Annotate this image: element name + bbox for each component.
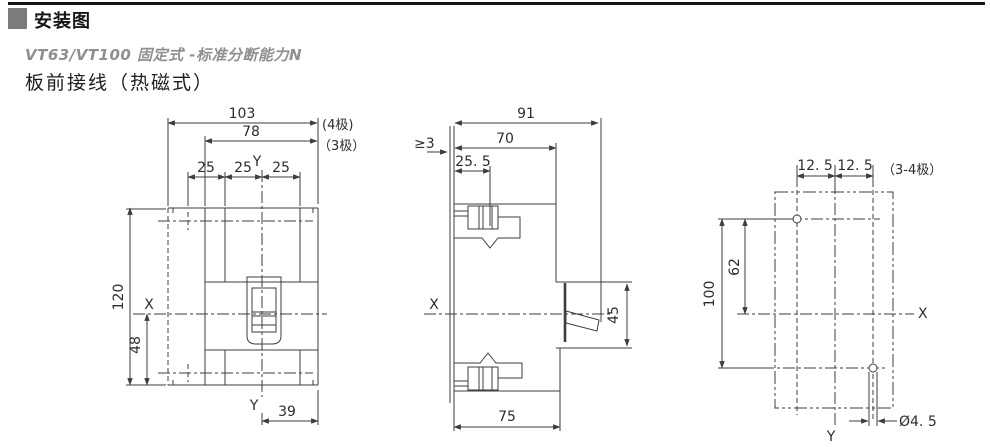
mounting-plan-view: 12. 5 12. 5 （3-4极） 62 100 X Ø4. 5 Y [702, 158, 942, 445]
label-3pole: （3极） [318, 139, 365, 154]
dim-text-120: 120 [111, 284, 127, 311]
terminal-screw-bottom [468, 367, 498, 390]
plan-axis-y: Y [826, 429, 836, 445]
dim-text-45: 45 [606, 306, 622, 324]
dim-text-100: 100 [702, 281, 718, 308]
dim-text-25-5: 25. 5 [455, 154, 491, 170]
fourth-pole-dashed-edge [168, 208, 188, 385]
plan-axis-x: X [918, 306, 928, 322]
dim-text-48: 48 [128, 336, 144, 354]
dim-text-39: 39 [278, 404, 296, 420]
dim-text-25-3: 25 [272, 160, 290, 176]
dim-text-103: 103 [229, 106, 256, 122]
mounting-hole-top [793, 215, 801, 223]
terminal-screw-top [468, 206, 498, 229]
dim-text-12-5-right: 12. 5 [837, 158, 873, 174]
dim-text-hole-dia: Ø4. 5 [899, 414, 937, 430]
side-axis-x: X [429, 297, 439, 313]
breaker-body-outline [168, 208, 318, 385]
dim-text-70: 70 [496, 131, 514, 147]
dim-text-62: 62 [727, 258, 743, 276]
dim-text-panel-thickness: ≥3 [414, 136, 435, 152]
dim-text-25-1: 25 [197, 160, 215, 176]
wire-clamp-bottom [454, 353, 522, 378]
label-4pole: (4极) [322, 118, 353, 133]
side-view: 91 70 ≥3 25. 5 X 45 75 [414, 106, 632, 431]
mounting-plate [450, 126, 454, 431]
catalog-page: 安装图 VT63/VT100 固定式 -标准分断能力N 板前接线（热磁式） [0, 0, 990, 447]
dim-text-91: 91 [517, 106, 535, 122]
wire-clamp-top [454, 217, 520, 248]
front-axis-x: X [144, 297, 154, 313]
dim-text-75: 75 [498, 409, 516, 425]
front-axis-y-bottom: Y [249, 398, 259, 414]
installation-drawing: 103 (4极) 78 （3极） Y 25 25 25 120 X 48 Y 3… [0, 0, 990, 447]
label-3-4pole: （3-4极） [882, 163, 942, 178]
front-axis-y-top: Y [252, 154, 262, 170]
dim-text-25-2: 25 [234, 160, 252, 176]
plan-breaker-outline [775, 192, 893, 408]
dim-text-12-5-left: 12. 5 [797, 158, 833, 174]
dim-text-78: 78 [242, 124, 260, 140]
front-view: 103 (4极) 78 （3极） Y 25 25 25 120 X 48 Y 3… [111, 106, 365, 425]
mounting-hole-bottom [869, 364, 877, 372]
